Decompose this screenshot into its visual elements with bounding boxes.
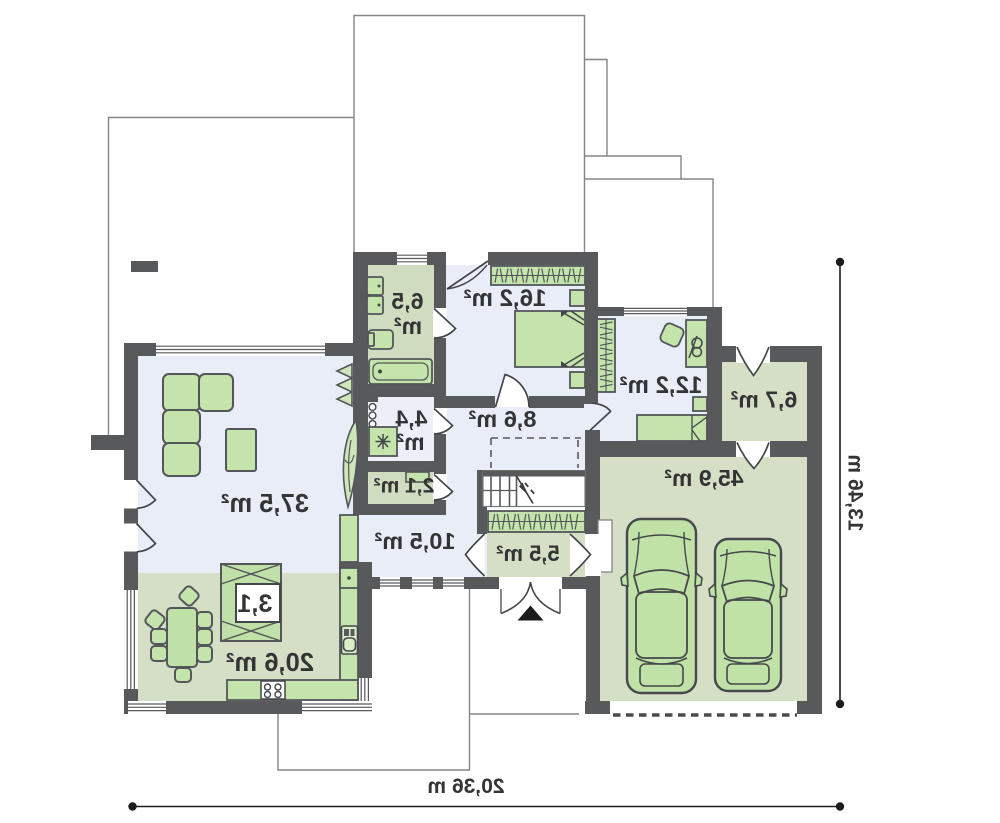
svg-text:4,4: 4,4 [395, 406, 427, 432]
svg-text:m²: m² [394, 313, 422, 339]
svg-text:8,6 m²: 8,6 m² [468, 406, 536, 432]
svg-text:13,46 m: 13,46 m [844, 454, 867, 531]
svg-text:m²: m² [396, 429, 424, 455]
svg-text:10,5 m²: 10,5 m² [374, 528, 455, 554]
svg-text:12,2 m²: 12,2 m² [620, 372, 703, 399]
svg-text:45,9 m²: 45,9 m² [664, 465, 744, 491]
svg-text:2,1 m²: 2,1 m² [374, 475, 435, 498]
svg-text:20,6 m²: 20,6 m² [226, 649, 314, 677]
svg-text:3,1: 3,1 [238, 590, 273, 618]
svg-text:37,5 m²: 37,5 m² [221, 490, 309, 518]
svg-text:6,7 m²: 6,7 m² [730, 387, 797, 413]
svg-text:6,5: 6,5 [391, 288, 423, 314]
svg-text:20,36 m: 20,36 m [427, 775, 504, 798]
svg-text:16,2 m²: 16,2 m² [464, 285, 547, 312]
svg-text:5,5 m²: 5,5 m² [496, 541, 560, 566]
